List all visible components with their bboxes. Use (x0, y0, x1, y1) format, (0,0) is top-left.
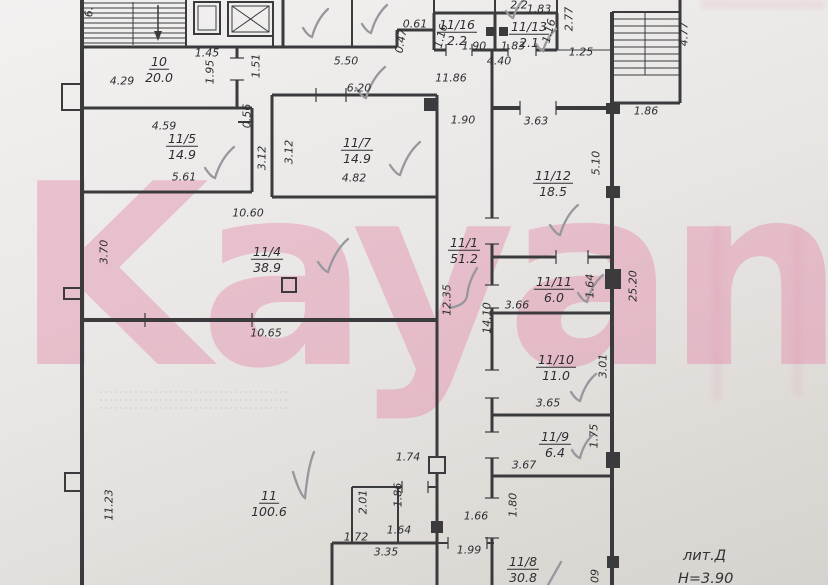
checkmarks-group (205, 0, 603, 585)
plan-drawing (0, 0, 828, 585)
stairs-right-group (612, 0, 680, 103)
ticks-group (145, 44, 588, 549)
walls-group (62, 0, 612, 585)
lift-shafts-group (194, 2, 273, 47)
stairs-left-group (84, 0, 186, 46)
liter-label: лит.Д (683, 548, 726, 564)
scan-texture (100, 392, 290, 408)
height-label: Н=3.90 (678, 571, 733, 585)
floor-plan-scan: Kayan (0, 0, 828, 585)
column-symbol (282, 278, 296, 292)
